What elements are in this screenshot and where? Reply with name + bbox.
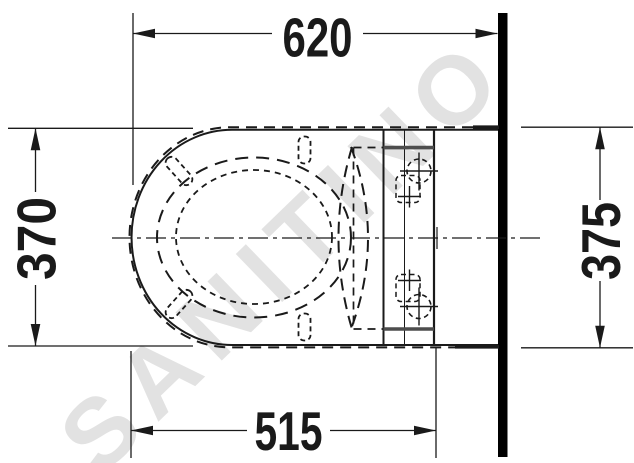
dimension-value-bottom: 515 [255,400,323,462]
dimension-value-right: 375 [570,202,632,280]
dimension-value-left: 370 [6,197,68,280]
arrowhead-620-left [133,29,155,39]
arrowhead-375-down [595,326,605,348]
arrowhead-375-up [595,127,605,149]
arrowhead-370-up [31,128,41,150]
bumper-top-left [163,154,195,187]
dimension-value-top: 620 [283,7,353,69]
technical-drawing-canvas: SANITINO [0,0,634,463]
arrowhead-620-right [476,29,498,39]
bumper-bottom-right [299,314,311,341]
technical-drawing-page: SANITINO [0,0,634,463]
mounting-slot-bottom [396,275,420,302]
mounting-hole-group-bottom [396,270,438,326]
watermark-text: SANITINO [39,15,529,463]
arrowhead-515-right [414,426,436,436]
wall-bar [498,13,508,457]
arrowhead-370-down [31,324,41,346]
